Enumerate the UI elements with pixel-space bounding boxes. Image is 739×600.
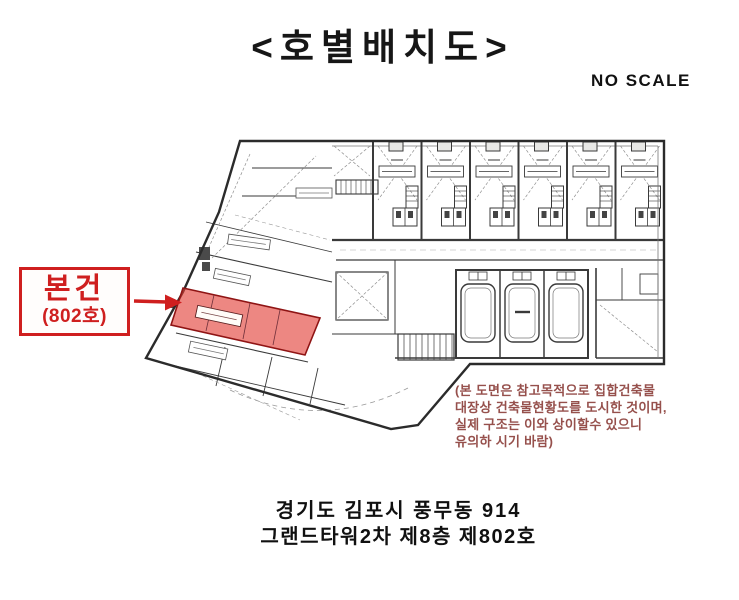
bottom-right-unit [596,146,664,358]
subject-callout-label: 본건 [44,275,105,304]
stairwell [332,260,456,360]
note-line: (본 도면은 참고목적으로 집합건축물 [455,382,725,399]
address-line-2: 그랜드타워2차 제8층 제802호 [58,524,739,550]
note-line: 대장상 건축물현황도를 도시한 것이며, [455,399,725,416]
corridor [332,240,664,260]
address-line-1: 경기도 김포시 풍무동 914 [58,498,739,524]
plan-disclaimer-note: (본 도면은 참고목적으로 집합건축물 대장상 건축물현황도를 도시한 것이며,… [455,382,725,450]
subject-callout-box: 본건 (802호) [19,267,130,336]
document-page: <호별배치도> NO SCALE [0,0,739,600]
property-address: 경기도 김포시 풍무동 914 그랜드타워2차 제8층 제802호 [0,498,739,550]
elevator-bank [456,270,588,358]
note-line: 실제 구조는 이와 상이할수 있으니 [455,416,725,433]
note-line: 유의하 시기 바람) [455,433,725,450]
upper-units-row [332,141,658,240]
subject-callout-unit-number: (802호) [42,306,107,328]
